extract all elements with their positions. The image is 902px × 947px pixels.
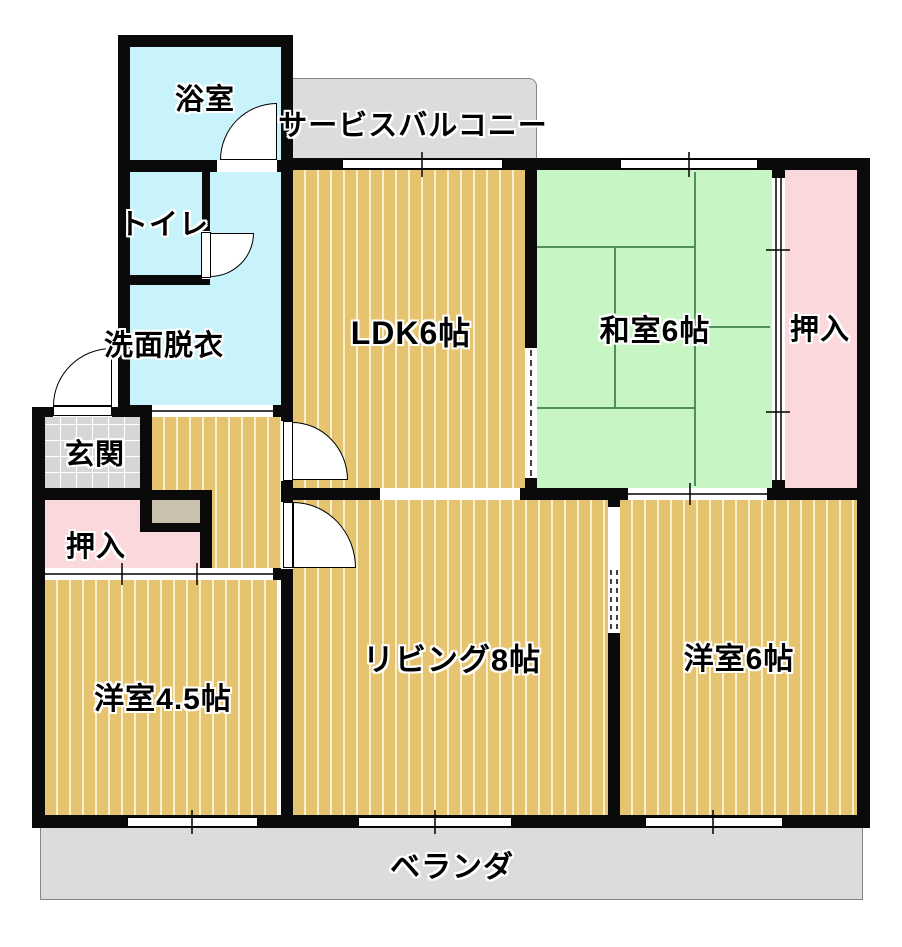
wall <box>608 633 620 815</box>
closet-left-label: 押入 <box>66 523 126 565</box>
washitsu-label: 和室6帖 <box>600 306 711 350</box>
bath-label: 浴室 <box>175 76 235 118</box>
genkan-label: 玄関 <box>65 431 125 473</box>
window <box>645 817 783 827</box>
ldk-label: LDK6帖 <box>351 308 472 354</box>
entrance-door-leaf <box>53 406 112 416</box>
closet-left-fusuma <box>45 568 273 580</box>
wall <box>283 488 380 500</box>
floor-plan: 浴室 サービスバルコニー トイレ 洗面脱衣 LDK6帖 和室6帖 押入 玄関 押… <box>0 0 902 947</box>
ldk-living-opening <box>380 488 520 500</box>
wall <box>772 158 785 178</box>
wall <box>200 498 212 568</box>
service-balcony-label: サービスバルコニー <box>278 102 547 144</box>
window <box>342 159 503 169</box>
window <box>358 817 512 827</box>
western-4-5-label: 洋室4.5帖 <box>94 674 232 718</box>
wall <box>112 407 128 417</box>
veranda-label: ベランダ <box>390 842 514 886</box>
wall <box>118 35 293 47</box>
wall <box>273 568 281 580</box>
washroom-label: 洗面脱衣 <box>104 322 224 364</box>
ldk-washitsu-sliding-door <box>525 348 537 478</box>
living-label: リビング8帖 <box>363 635 541 680</box>
washitsu-western6-fusuma <box>628 488 767 500</box>
western-6-label: 洋室6帖 <box>684 634 795 678</box>
wall <box>38 488 152 500</box>
washroom-sliding-door <box>152 405 273 417</box>
western6-door-gap <box>608 507 620 569</box>
wall <box>772 480 785 490</box>
closet-right-label: 押入 <box>790 306 850 348</box>
washroom-floor-right <box>210 172 281 405</box>
window <box>127 817 258 827</box>
wall <box>140 405 152 532</box>
closet-right-fusuma <box>772 178 785 480</box>
toilet-label: トイレ <box>119 201 209 243</box>
wall <box>118 275 210 285</box>
wall <box>32 407 45 828</box>
wall <box>38 407 53 417</box>
shoe-cabinet <box>152 500 200 523</box>
living-door-leaf <box>283 502 293 568</box>
window <box>620 159 758 169</box>
bath-door-gap <box>217 160 277 172</box>
